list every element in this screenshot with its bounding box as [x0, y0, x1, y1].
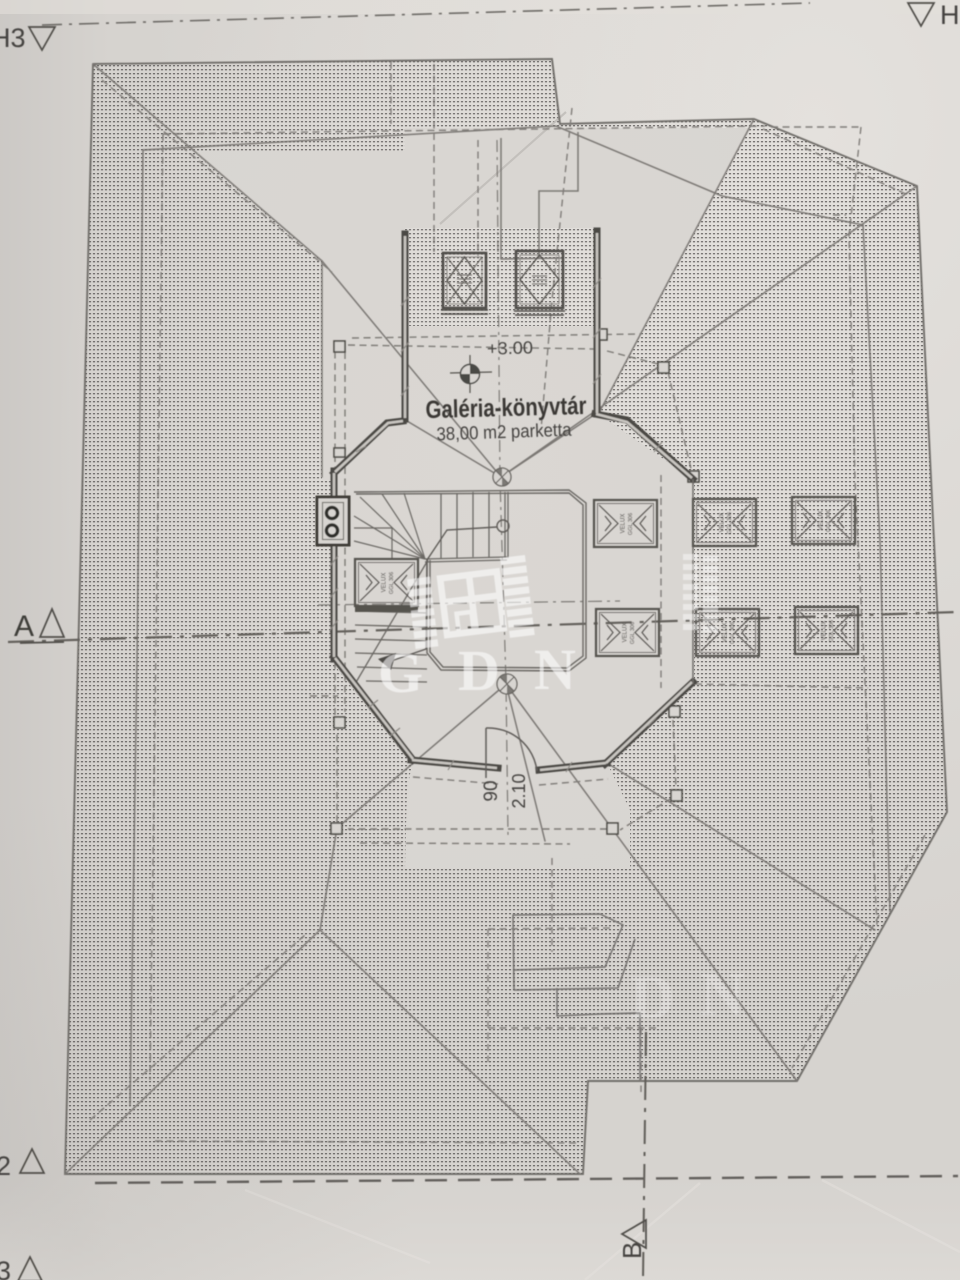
svg-text:2.10: 2.10 [509, 773, 529, 808]
svg-text:2: 2 [0, 1151, 11, 1181]
svg-text:D: D [630, 964, 675, 1032]
svg-text:A: A [14, 610, 34, 643]
svg-text:B: B [617, 1242, 647, 1259]
svg-text:H3: H3 [0, 23, 26, 53]
svg-text:G: G [378, 640, 423, 705]
svg-text:+3.00: +3.00 [487, 337, 534, 358]
svg-text:N: N [534, 637, 576, 702]
svg-text:3: 3 [0, 1256, 11, 1280]
svg-text:90: 90 [481, 780, 502, 801]
svg-text:H: H [940, 0, 960, 30]
svg-text:N: N [700, 961, 745, 1029]
svg-text:D: D [458, 638, 500, 703]
